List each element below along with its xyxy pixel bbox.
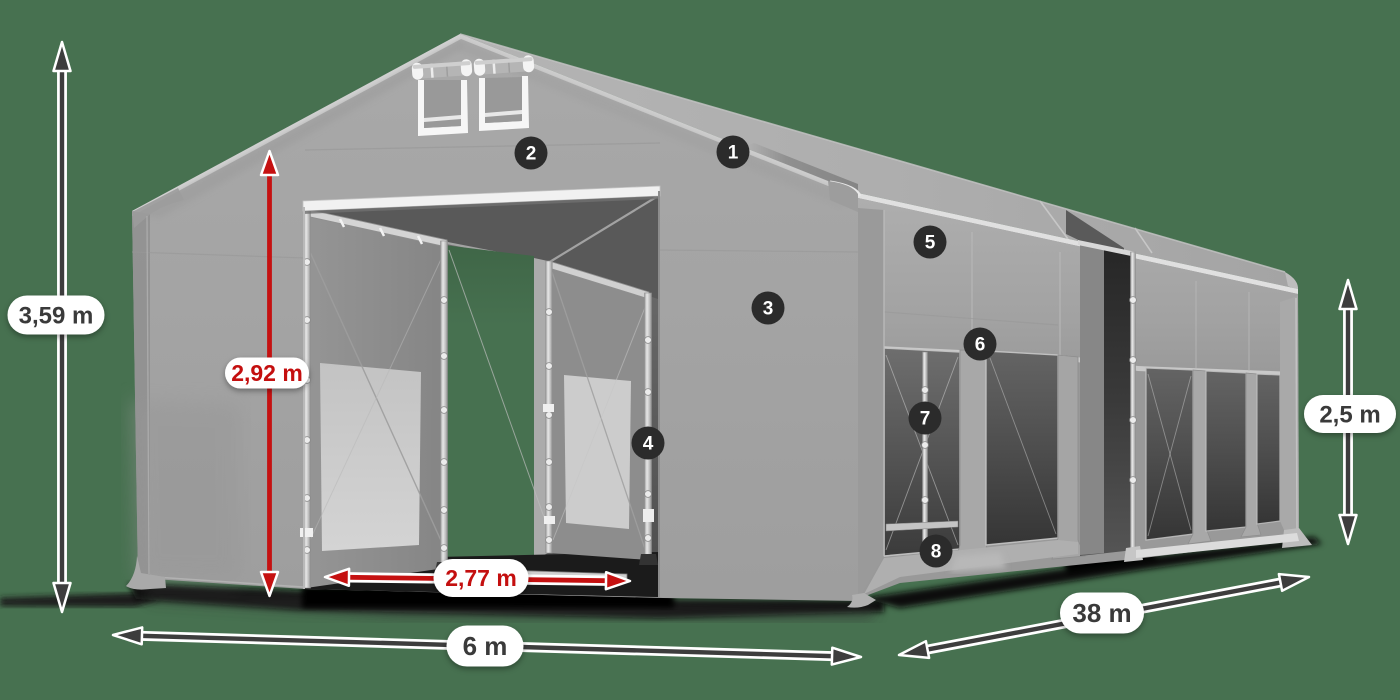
svg-text:1: 1 xyxy=(728,143,739,164)
svg-text:2,92 m: 2,92 m xyxy=(231,360,303,386)
svg-text:7: 7 xyxy=(920,409,931,430)
svg-text:2: 2 xyxy=(526,144,537,165)
svg-text:3: 3 xyxy=(763,299,774,320)
svg-text:8: 8 xyxy=(931,542,942,563)
svg-text:6: 6 xyxy=(975,335,986,356)
svg-text:2,5 m: 2,5 m xyxy=(1319,401,1380,428)
svg-text:3,59 m: 3,59 m xyxy=(19,302,94,329)
svg-text:5: 5 xyxy=(925,233,936,254)
svg-text:2,77 m: 2,77 m xyxy=(445,565,517,591)
svg-text:38 m: 38 m xyxy=(1072,598,1131,628)
svg-text:4: 4 xyxy=(643,434,654,455)
svg-text:6 m: 6 m xyxy=(463,631,508,661)
